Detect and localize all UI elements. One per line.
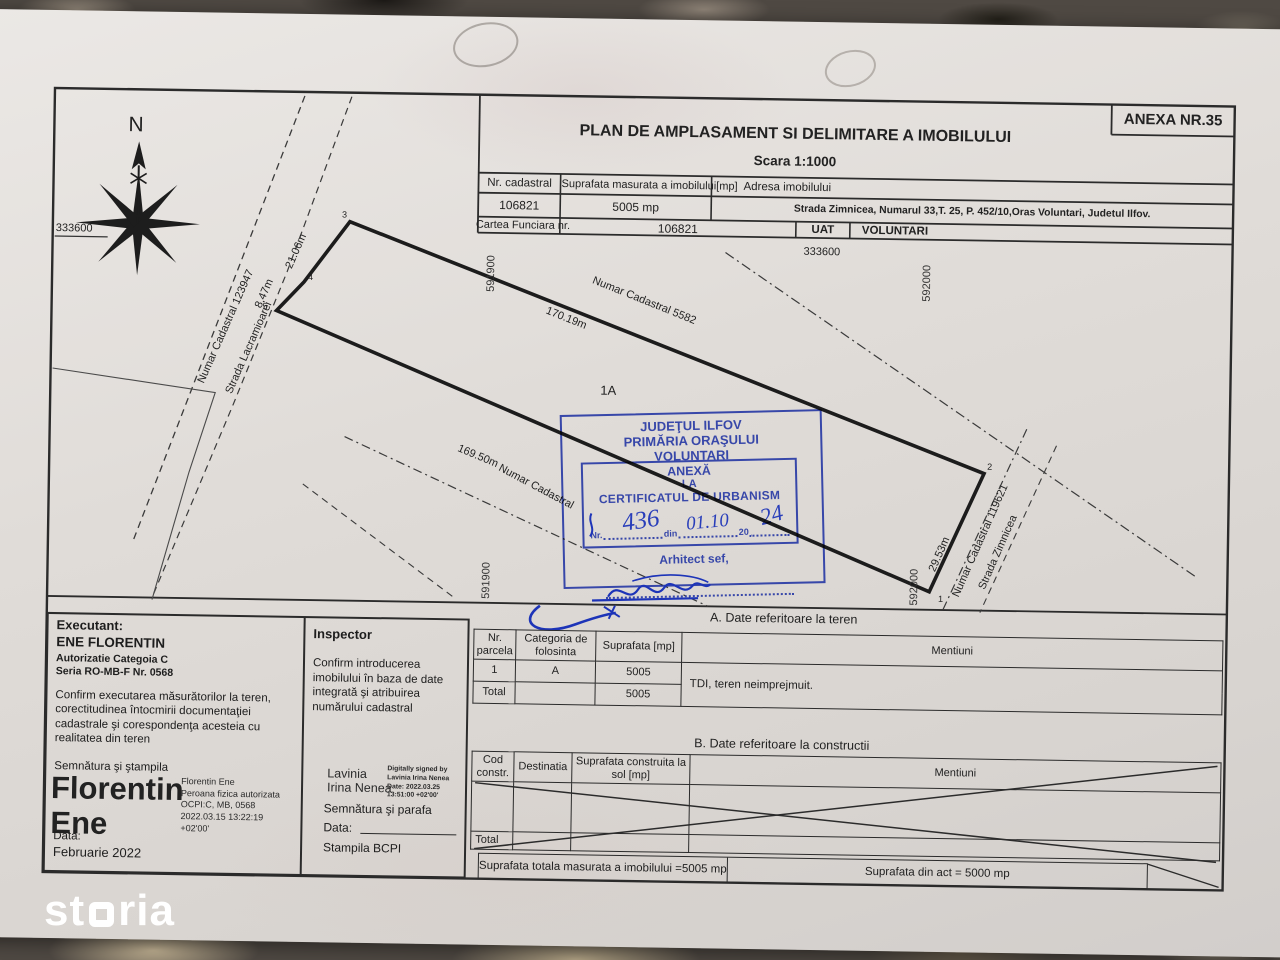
hand-number: 436 — [620, 505, 661, 538]
teren-row-suprafata: 5005 — [595, 661, 681, 684]
photographed-document: ANEXA NR.35 PLAN DE AMPLASAMENT SI DELIM… — [0, 0, 1280, 960]
id-col3-header: Adresa imobilului — [743, 181, 831, 194]
total-measured: Suprafata totala masurata a imobilului =… — [479, 854, 727, 882]
teren-total-suprafata: 5005 — [595, 683, 681, 706]
point-5-label: 5 — [263, 301, 268, 311]
parcel-id-label: 1A — [600, 383, 616, 398]
teren-row-nr: 1 — [473, 659, 515, 682]
grid-x-591900-bottom: 591900 — [480, 562, 493, 599]
suprafata-value: 5005 mp — [561, 199, 710, 215]
teren-total-label: Total — [473, 681, 515, 704]
stamp-nr-label: Nr. — [590, 530, 602, 540]
grid-x-592000-top: 592000 — [921, 265, 934, 302]
anexa-number: ANEXA NR.35 — [1112, 111, 1235, 130]
watermark-st: st — [44, 886, 85, 936]
executant-data-value: Februarie 2022 — [53, 844, 141, 860]
stamp-din-label: din — [664, 528, 678, 538]
stamp-arhitect: Arhitect sef, — [565, 549, 823, 569]
watermark-ria: ria — [118, 886, 175, 936]
insp-meta-line: 13:51:00 +02'00' — [387, 792, 449, 802]
uat-label: UAT — [797, 224, 849, 237]
teren-mentiuni-value: TDI, teren neimprejmuit. — [681, 662, 1223, 714]
teren-header-nr: Nr. parcela — [474, 629, 516, 660]
inspector-stampila-label: Stampila BCPI — [323, 840, 401, 855]
stamp-year-prefix: 20 — [739, 527, 749, 537]
executant-heading: Executant: — [56, 617, 123, 633]
hand-date: 01.10 — [685, 510, 730, 536]
point-4-label: 4 — [308, 272, 313, 282]
inspector-signature-meta: Digitally signed by Lavinia Irina Nenea … — [387, 765, 450, 801]
id-col2-header: Suprafata masurata a imobilului[mp] — [561, 178, 710, 192]
table-teren: Nr. parcela Categoria de folosinta Supra… — [472, 629, 1223, 716]
inspector-confirm-text: Confirm introducerea imobilului în baza … — [312, 656, 455, 717]
total-from-act: Suprafata din act = 5000 mp — [727, 858, 1147, 889]
inspector-signature-name: Lavinia Irina Nenea — [327, 766, 392, 795]
teren-row-categoria: A — [515, 660, 595, 683]
grid-x-591900-top: 591900 — [485, 255, 498, 292]
executant-name: ENE FLORENTIN — [56, 634, 165, 651]
urbanism-stamp: JUDEŢUL ILFOV PRIMĂRIA ORAŞULUI VOLUNTAR… — [560, 409, 826, 589]
executant-data-label: Data: — [53, 830, 81, 842]
boxes-divider — [300, 618, 306, 874]
inspector-semnatura-label: Semnătura şi parafa — [324, 801, 432, 817]
inspector-sig-line: Lavinia — [327, 766, 392, 781]
executant-signature-meta: Florentin Ene Peroana fizica autorizata … — [180, 776, 280, 836]
executant-confirm-text: Confirm executarea măsurătorilor la tere… — [55, 688, 288, 749]
cartea-funciara-label: Cartea Funciara nr. — [476, 219, 562, 232]
grid-x-592000-bottom: 592000 — [908, 569, 921, 606]
executant-seria: Seria RO-MB-F Nr. 0568 — [56, 665, 173, 679]
teren-header-suprafata: Suprafata [mp] — [596, 631, 682, 662]
uat-value: VOLUNTARI — [862, 225, 928, 238]
north-label: N — [128, 113, 144, 137]
point-1-label: 1 — [938, 594, 943, 604]
watermark-o-glyph — [89, 902, 114, 927]
grid-y-333600-top: 333600 — [803, 246, 840, 259]
teren-total-categoria — [515, 682, 595, 705]
storia-watermark: stria — [44, 886, 175, 936]
id-col1-header: Nr. cadastral — [479, 177, 559, 190]
cadastral-plan-document: ANEXA NR.35 PLAN DE AMPLASAMENT SI DELIM… — [0, 0, 1280, 960]
grid-y-333600-left: 333600 — [56, 222, 93, 235]
inspector-sig-line: Irina Nenea — [327, 780, 392, 795]
inspector-heading: Inspector — [313, 626, 372, 642]
teren-header-categoria: Categoria de folosinta — [516, 630, 596, 661]
executant-autorizatie: Autorizatie Categoia C — [56, 652, 168, 666]
sig-meta-line: +02'00' — [180, 823, 279, 836]
point-2-label: 2 — [987, 462, 992, 472]
executant-digital-signature-1: Florentin — [51, 770, 184, 808]
inspector-data-label: Data: — [323, 820, 352, 834]
table-constructii-crossout — [470, 751, 1222, 867]
point-3-label: 3 — [342, 210, 347, 220]
nr-cadastral-value: 106821 — [479, 198, 559, 213]
